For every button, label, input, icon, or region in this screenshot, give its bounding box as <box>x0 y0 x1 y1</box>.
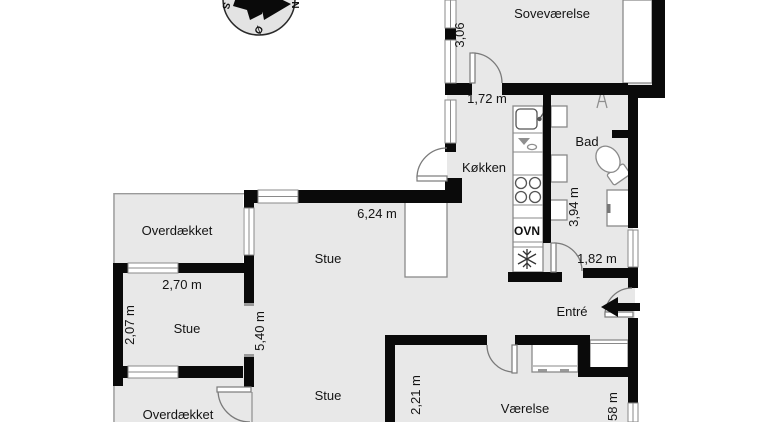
compass-north-label: N <box>289 1 300 8</box>
hall-top-dim: 1,72 m <box>467 91 507 106</box>
oven-label: OVN <box>514 224 540 238</box>
living-upper-label: Stue <box>315 251 342 266</box>
living-small-label: Stue <box>174 321 201 336</box>
bath-cabinet-1 <box>551 106 567 127</box>
window <box>128 366 178 378</box>
entry-closet <box>590 340 628 368</box>
floor-plan-drawing: N S Ø Soveværelse 1,72 m Køkken Bad OVN … <box>0 0 768 422</box>
window <box>628 230 638 267</box>
bath-cabinet-2 <box>551 155 567 182</box>
living-lower-label: Stue <box>315 388 342 403</box>
window <box>128 263 178 273</box>
covered-bottom-label: Overdækket <box>143 407 214 422</box>
floor-plan-page: N S Ø Soveværelse 1,72 m Køkken Bad OVN … <box>0 0 768 422</box>
bedroom-wardrobe <box>623 0 652 83</box>
hall-right-dim: 1,82 m <box>577 251 617 266</box>
window <box>258 190 298 203</box>
window <box>244 208 254 255</box>
bath-cabinet-3 <box>550 200 567 220</box>
kitchen-label: Køkken <box>462 160 506 175</box>
small-living-width-dim: 2,70 m <box>162 277 202 292</box>
living-left-dim: 5,40 m <box>252 311 267 351</box>
wardrobe-handle-right <box>560 369 569 372</box>
window <box>628 403 638 422</box>
bedroom-width-dim: 3,06 <box>452 22 467 47</box>
covered-top-label: Overdækket <box>142 223 213 238</box>
room-height-dim: 2,21 m <box>408 375 423 415</box>
room-label: Værelse <box>501 401 549 416</box>
living-top-dim: 6,24 m <box>357 206 397 221</box>
room-right-dim: 2,58 m <box>605 392 620 422</box>
entry-label: Entré <box>556 304 587 319</box>
small-living-height-dim: 2,07 m <box>122 305 137 345</box>
bedroom-label: Soveværelse <box>514 6 590 21</box>
bath-label: Bad <box>575 134 598 149</box>
wardrobe-handle-left <box>538 369 547 372</box>
washing-machine-handle <box>607 204 611 213</box>
kitchen-counter <box>513 106 544 272</box>
bath-height-dim: 3,94 m <box>566 187 581 227</box>
room-wardrobe <box>532 344 578 372</box>
window <box>445 100 456 143</box>
dining-sideboard <box>405 202 447 277</box>
